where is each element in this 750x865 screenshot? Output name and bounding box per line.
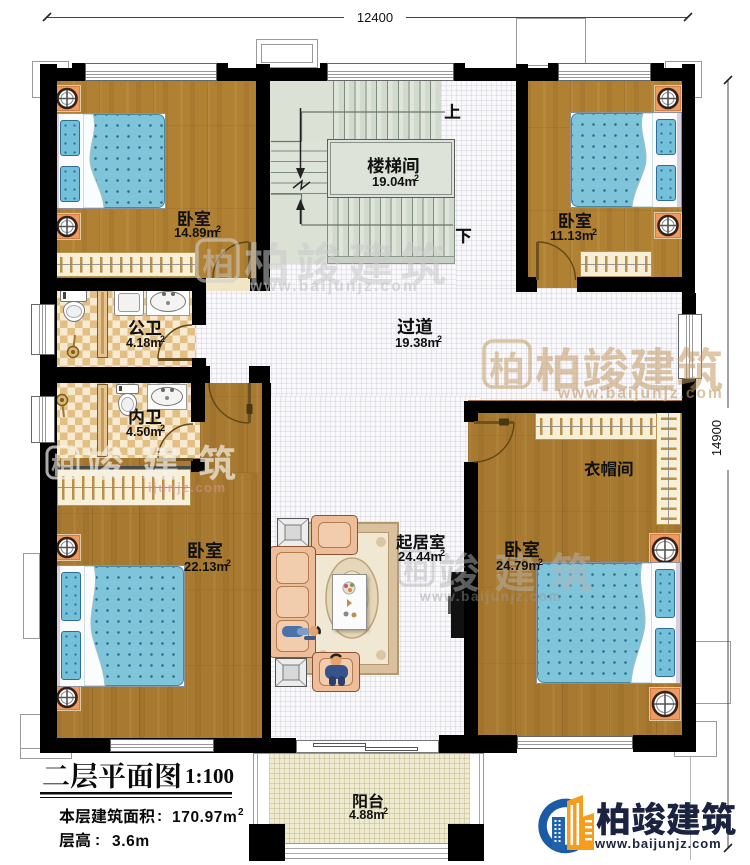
svg-text:www.baijunjz.com: www.baijunjz.com <box>419 589 562 604</box>
svg-text:www.baijunjz.com: www.baijunjz.com <box>557 385 724 402</box>
svg-text:2: 2 <box>592 227 597 237</box>
svg-text:2: 2 <box>160 423 165 433</box>
svg-text:2: 2 <box>538 557 543 567</box>
svg-text:1:100: 1:100 <box>185 764 234 788</box>
svg-text:24.44m: 24.44m <box>398 549 442 564</box>
svg-text:3.6m: 3.6m <box>112 833 150 850</box>
svg-text:170.97m: 170.97m <box>172 809 237 826</box>
svg-text:2: 2 <box>437 334 442 344</box>
svg-text:19.38m: 19.38m <box>395 335 439 350</box>
svg-text:24.79m: 24.79m <box>496 558 540 573</box>
svg-text:2: 2 <box>238 807 244 818</box>
svg-text:19.04m: 19.04m <box>372 174 416 189</box>
svg-text:2: 2 <box>414 173 419 183</box>
svg-text:2: 2 <box>383 806 388 816</box>
svg-text:www.baijunjz.com: www.baijunjz.com <box>594 836 722 851</box>
svg-text:11.13m: 11.13m <box>550 228 593 243</box>
svg-text:4.18m: 4.18m <box>126 336 161 350</box>
svg-text::: : <box>157 808 162 825</box>
svg-text:2: 2 <box>216 224 221 234</box>
svg-text::: : <box>95 832 100 849</box>
svg-text:14.89m: 14.89m <box>174 225 218 240</box>
svg-text:www.baijunjz.com: www.baijunjz.com <box>249 278 419 295</box>
svg-text:2: 2 <box>226 558 231 568</box>
svg-text:4.88m: 4.88m <box>349 808 384 822</box>
svg-text:4.50m: 4.50m <box>126 425 161 439</box>
svg-text:2: 2 <box>160 334 165 344</box>
svg-text:22.13m: 22.13m <box>184 559 228 574</box>
svg-text:2: 2 <box>440 548 445 558</box>
svg-text:ijunjz.com: ijunjz.com <box>148 480 227 495</box>
